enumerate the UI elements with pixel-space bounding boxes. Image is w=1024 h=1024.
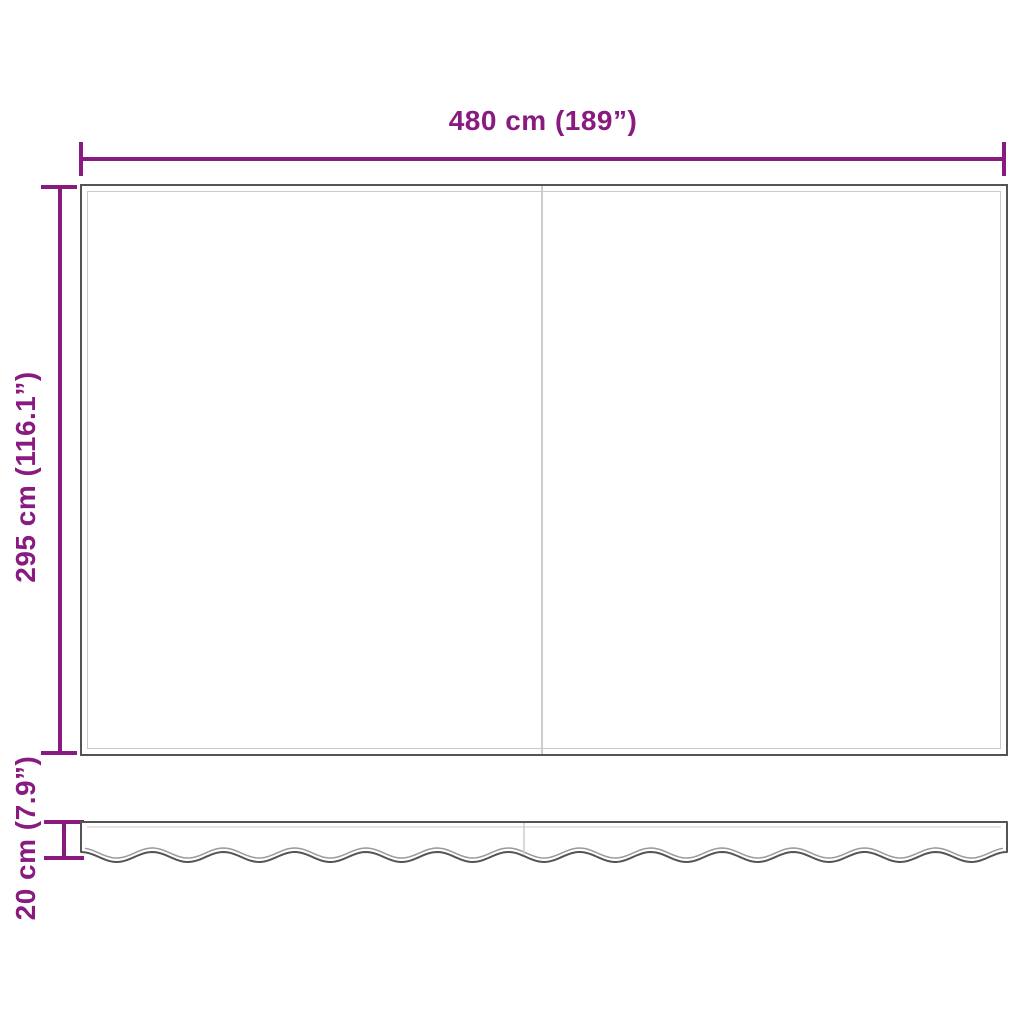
fabric-hem-stitch-line [87, 191, 1001, 749]
valance-outline [81, 822, 1007, 862]
width-dimension-cap-right [1002, 142, 1006, 176]
height-dimension-cap-top [41, 185, 77, 189]
width-dimension-line [81, 157, 1005, 161]
valance-dimension-line [62, 824, 66, 856]
valance-dimension-label: 20 cm (7.9”) [10, 756, 42, 921]
width-dimension-label: 480 cm (189”) [449, 105, 638, 137]
product-dimension-diagram: 480 cm (189”) 295 cm (116.1”) 20 cm (7.9… [0, 0, 1024, 1024]
valance-strip [79, 817, 1011, 877]
awning-fabric-panel [80, 184, 1008, 756]
height-dimension-line [58, 187, 62, 753]
height-dimension-cap-bottom [41, 751, 77, 755]
valance-dimension-cap-top [44, 820, 84, 824]
fabric-center-seam [541, 186, 543, 754]
width-dimension-cap-left [79, 142, 83, 176]
height-dimension-label: 295 cm (116.1”) [10, 371, 42, 582]
valance-dimension-cap-bottom [44, 856, 84, 860]
